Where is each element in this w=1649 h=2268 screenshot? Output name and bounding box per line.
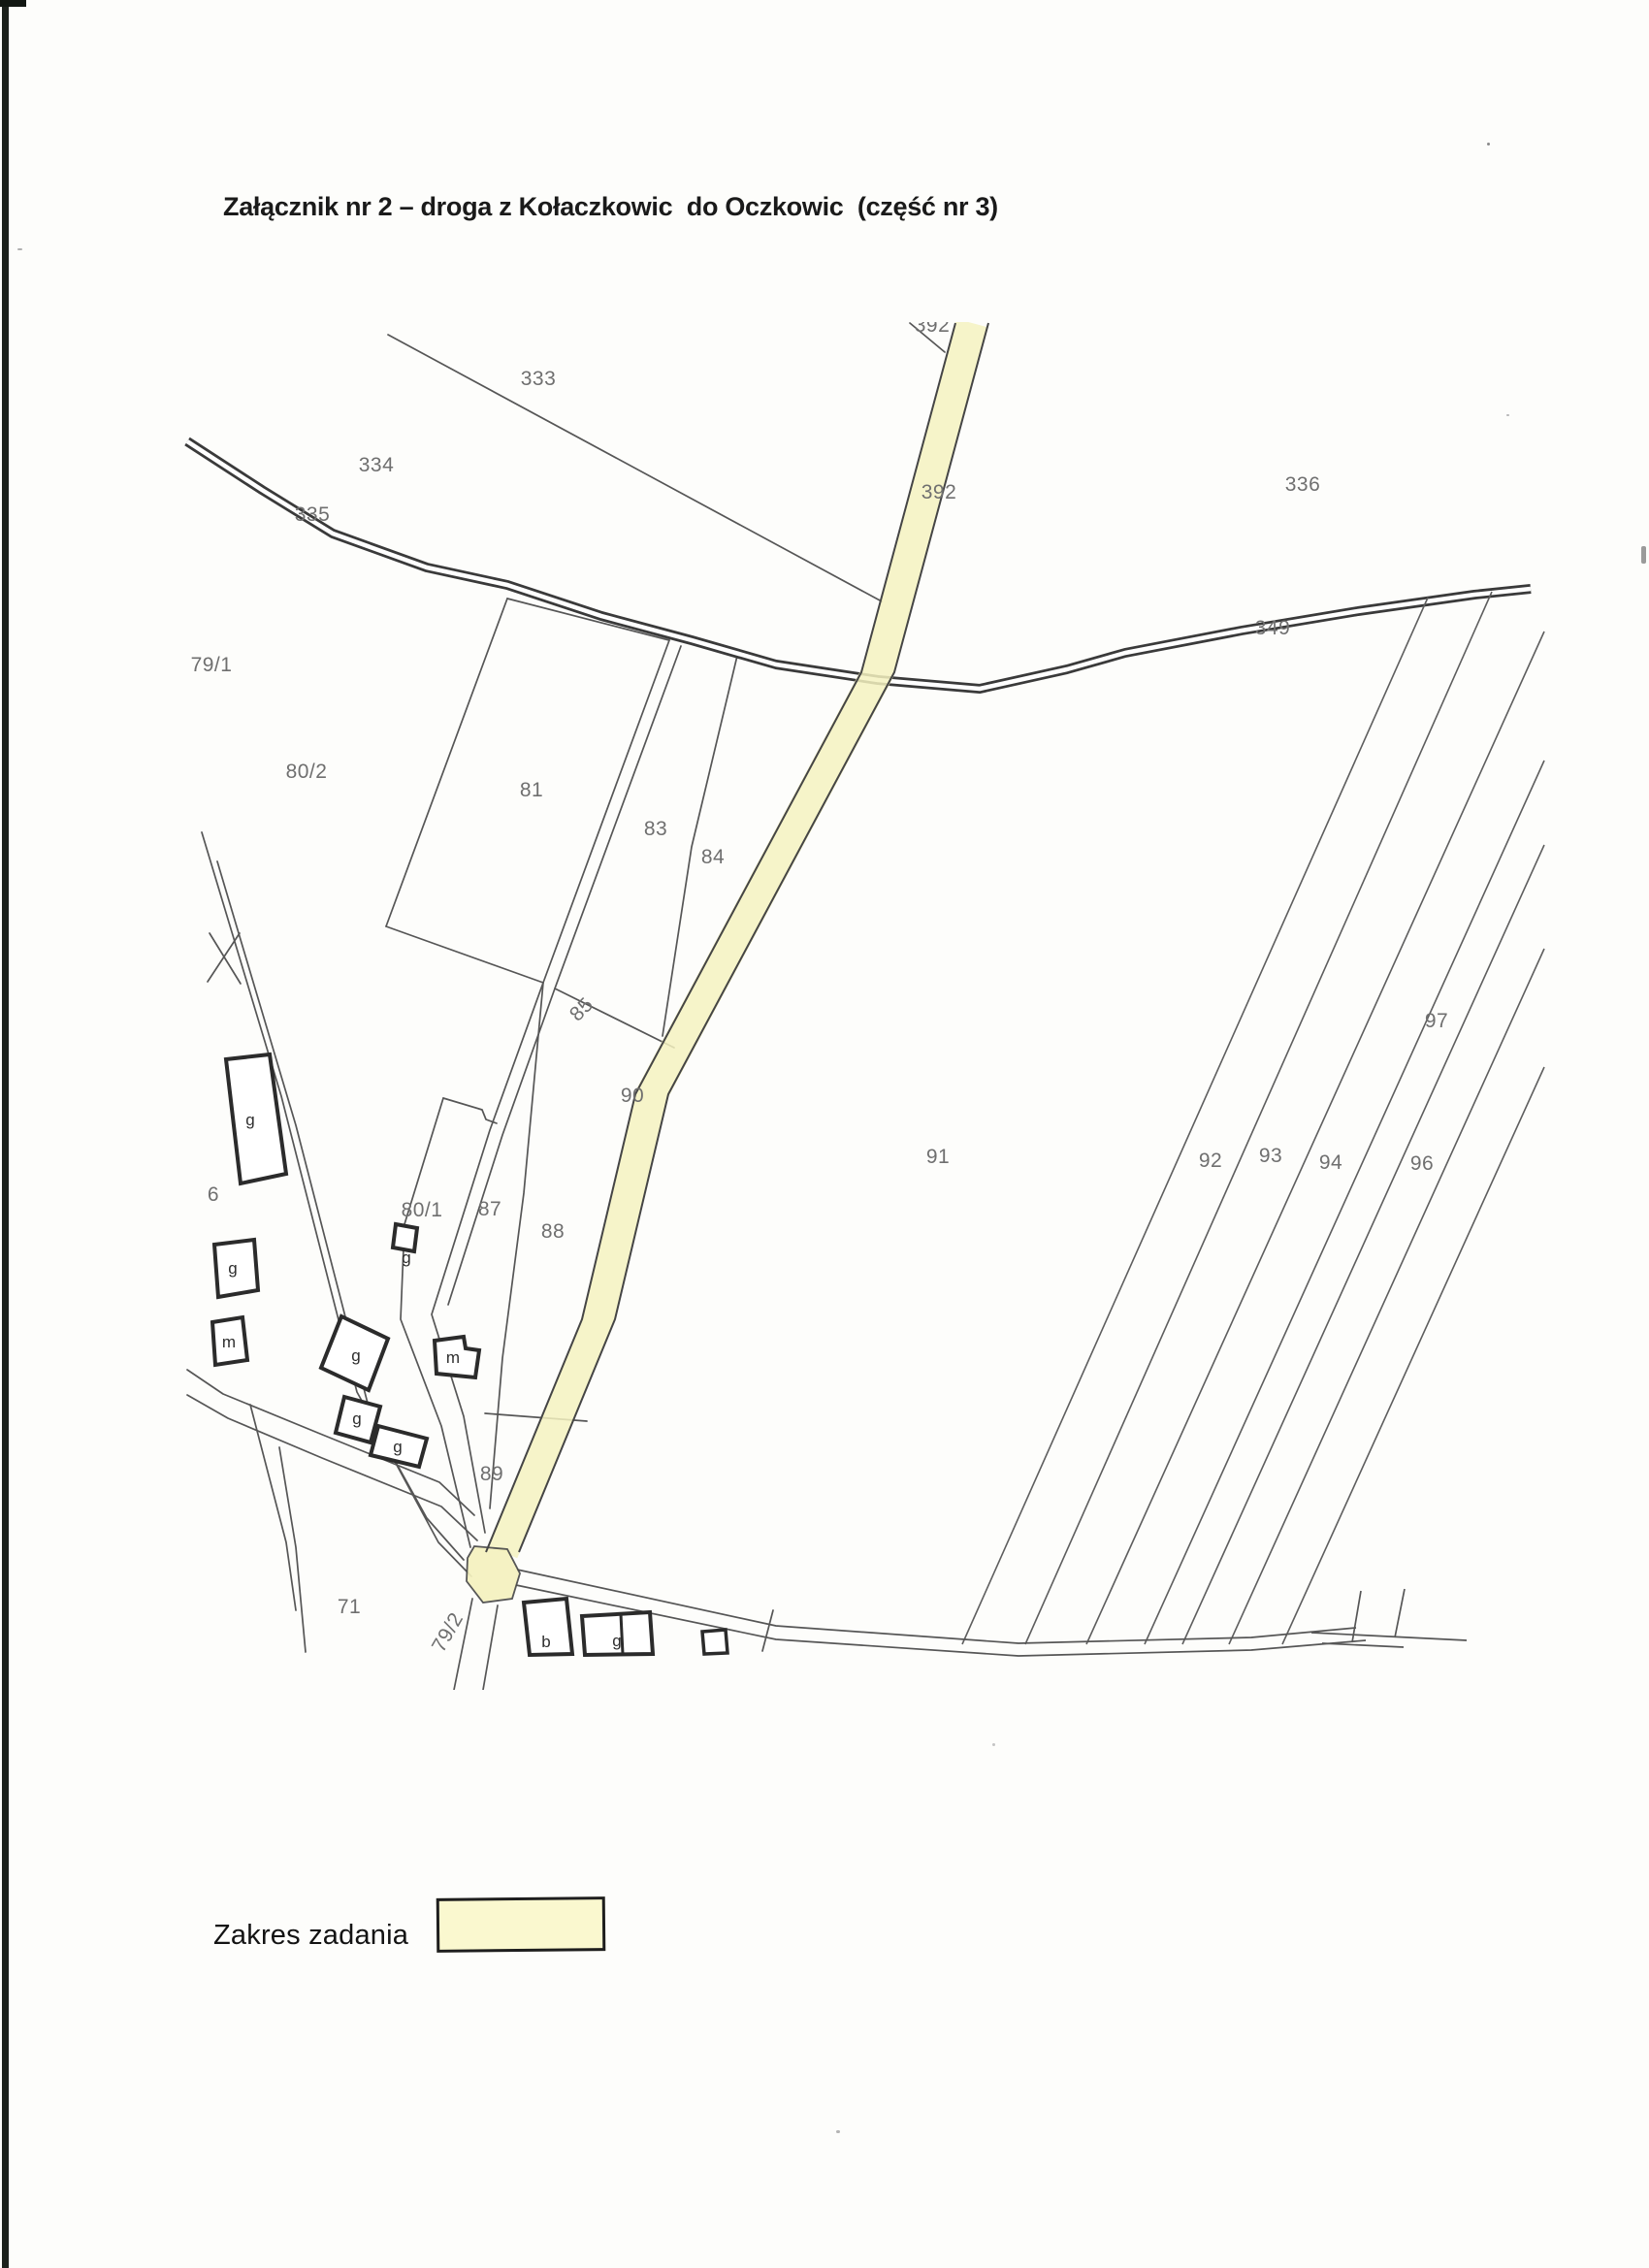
scanned-document-page: Załącznik nr 2 – droga z Kołaczkowic do … (0, 0, 1649, 2268)
building-letter: b (541, 1633, 550, 1652)
building-letter: g (393, 1438, 402, 1457)
parcel-label: 71 (338, 1596, 361, 1619)
parcel-label: 96 (1410, 1152, 1434, 1176)
parcel-label: 335 (295, 503, 331, 527)
parcel-label: 88 (541, 1220, 565, 1244)
page-title: Załącznik nr 2 – droga z Kołaczkowic do … (223, 192, 998, 222)
scan-edge-band (2, 0, 9, 2268)
scan-speck (992, 1743, 995, 1746)
building-letter: m (446, 1348, 460, 1368)
parcel-label: 79/1 (191, 654, 233, 677)
building-letter: g (352, 1409, 361, 1429)
parcel-label: 81 (520, 779, 543, 802)
parcel-label: 392 (915, 322, 951, 338)
scan-corner-mark (0, 0, 26, 7)
building-letter: g (351, 1346, 360, 1366)
parcel-label: 85 (566, 993, 598, 1026)
label-layer: 39233333433539233634979/180/281838485909… (145, 322, 1562, 1690)
legend-label: Zakres zadania (213, 1920, 408, 1952)
parcel-label: 92 (1199, 1150, 1222, 1173)
parcel-label: 93 (1259, 1145, 1282, 1168)
parcel-label: 90 (621, 1085, 644, 1108)
building-letter: m (222, 1333, 236, 1352)
parcel-label: 6 (208, 1183, 219, 1207)
building-letter: g (245, 1111, 254, 1130)
legend-swatch (436, 1896, 606, 1953)
parcel-label: 334 (359, 454, 395, 477)
parcel-label: 333 (521, 368, 557, 391)
parcel-label: 87 (478, 1198, 501, 1221)
building-letter: g (612, 1632, 621, 1651)
parcel-label: 94 (1319, 1151, 1342, 1175)
parcel-label: 336 (1285, 473, 1321, 497)
scan-speck (1641, 546, 1646, 564)
scan-speck (836, 2130, 840, 2133)
parcel-label: 91 (926, 1146, 950, 1169)
parcel-label: 89 (480, 1463, 503, 1486)
parcel-label: 84 (701, 846, 725, 869)
parcel-label: 83 (644, 818, 667, 841)
scan-speck (17, 248, 22, 250)
parcel-label: 97 (1425, 1010, 1448, 1033)
parcel-label: 80/2 (286, 761, 328, 784)
cadastral-map: 39233333433539233634979/180/281838485909… (145, 322, 1562, 1690)
building-letter: g (228, 1259, 237, 1279)
scan-speck (1487, 143, 1490, 146)
parcel-label: 349 (1255, 617, 1291, 640)
parcel-label: 392 (921, 481, 957, 504)
parcel-label: 79/2 (428, 1608, 469, 1656)
parcel-label: 80/1 (402, 1199, 443, 1222)
building-letter: g (402, 1248, 410, 1268)
